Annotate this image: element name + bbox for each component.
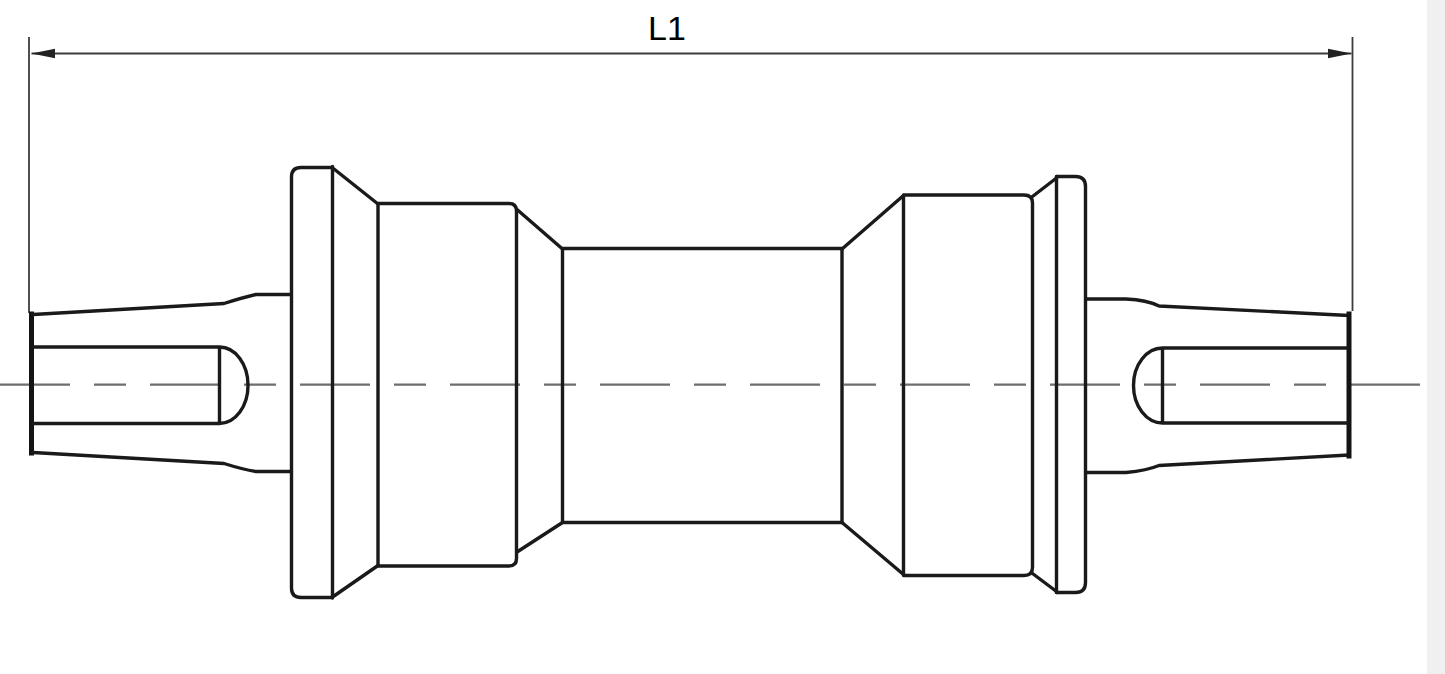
left-cup <box>334 169 563 596</box>
arrowhead-right-icon <box>1328 49 1352 58</box>
dimension-label: L1 <box>648 9 686 47</box>
drawing-canvas: L1 <box>0 0 1445 674</box>
arrowhead-left-icon <box>32 49 56 58</box>
right-gutter <box>1427 0 1445 674</box>
part-outline <box>32 167 1350 599</box>
left-spindle <box>32 295 292 472</box>
left-cone-transition <box>517 210 563 553</box>
technical-drawing: L1 <box>0 0 1445 674</box>
left-flange <box>292 167 333 599</box>
dimension-L1: L1 <box>29 9 1353 313</box>
